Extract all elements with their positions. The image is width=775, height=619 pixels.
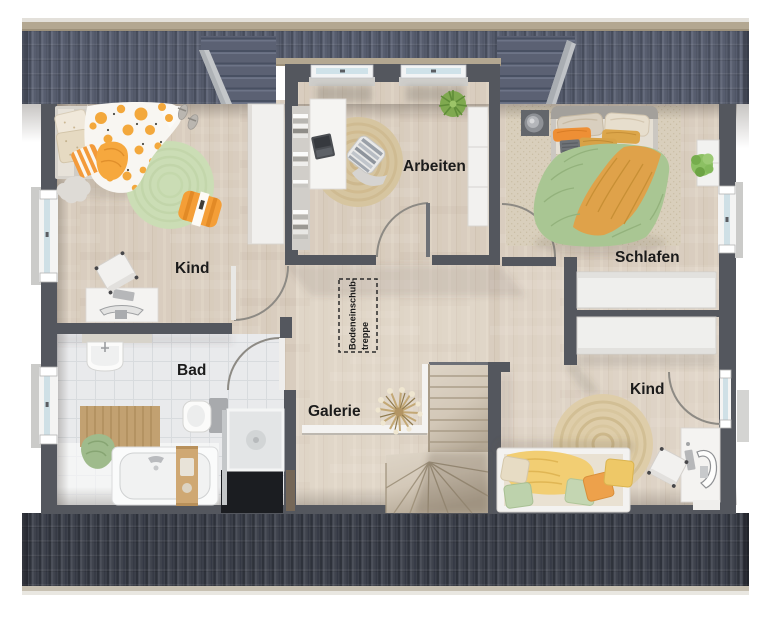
svg-text:Schlafen: Schlafen	[615, 249, 680, 266]
svg-text:Kind: Kind	[630, 381, 664, 398]
svg-text:Kind: Kind	[175, 260, 209, 277]
svg-text:Galerie: Galerie	[308, 403, 361, 420]
svg-text:treppe: treppe	[360, 322, 370, 350]
svg-text:Bodeneinschub-: Bodeneinschub-	[348, 278, 358, 350]
svg-text:Bad: Bad	[177, 362, 206, 379]
svg-text:Arbeiten: Arbeiten	[403, 158, 466, 175]
